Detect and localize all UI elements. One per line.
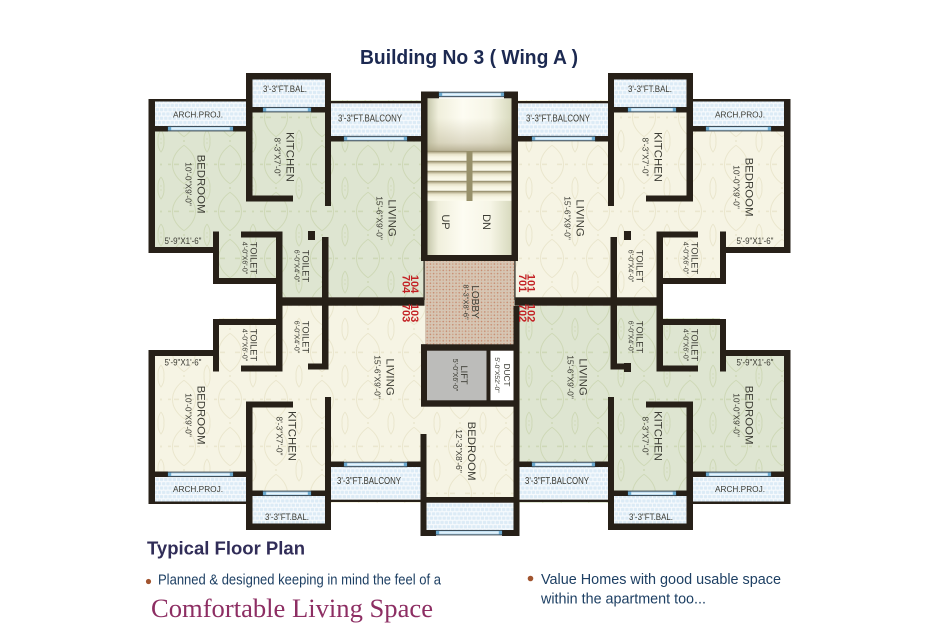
- svg-text:6'-0"X4'-0": 6'-0"X4'-0": [626, 250, 633, 283]
- svg-text:3'-3"FT.BALCONY: 3'-3"FT.BALCONY: [525, 476, 589, 487]
- svg-text:LIVING: LIVING: [576, 358, 588, 395]
- svg-text:BEDROOM: BEDROOM: [465, 422, 477, 481]
- svg-text:5'-9"X1'-6": 5'-9"X1'-6": [737, 236, 774, 246]
- svg-text:10'-0"X9'-0": 10'-0"X9'-0": [731, 165, 741, 209]
- svg-text:5'-9"X1'-6": 5'-9"X1'-6": [165, 357, 202, 367]
- svg-text:6'-0"X4'-0": 6'-0"X4'-0": [292, 250, 299, 283]
- svg-text:701: 701: [516, 274, 528, 292]
- svg-text:KITCHEN: KITCHEN: [283, 132, 295, 182]
- svg-text:ARCH.PROJ.: ARCH.PROJ.: [173, 485, 223, 494]
- svg-text:5'-9"X1'-6": 5'-9"X1'-6": [737, 357, 774, 367]
- svg-text:KITCHEN: KITCHEN: [651, 132, 663, 182]
- svg-text:TOILET: TOILET: [689, 242, 699, 275]
- svg-text:UP: UP: [439, 214, 451, 229]
- svg-text:LIFT: LIFT: [459, 365, 469, 384]
- svg-text:15'-6"X9'-0": 15'-6"X9'-0": [565, 355, 575, 399]
- svg-text:8'-3"X7'-0": 8'-3"X7'-0": [274, 417, 284, 456]
- svg-text:15'-6"X9'-0": 15'-6"X9'-0": [372, 355, 382, 399]
- svg-text:15'-6"X9'-0": 15'-6"X9'-0": [374, 196, 384, 240]
- svg-text:4'-0"X6'-0": 4'-0"X6'-0": [240, 329, 247, 362]
- svg-text:702: 702: [516, 304, 528, 322]
- svg-text:TOILET: TOILET: [248, 329, 258, 362]
- svg-text:3'-3"FT.BALCONY: 3'-3"FT.BALCONY: [526, 114, 590, 125]
- svg-text:4'-0"X6'-0": 4'-0"X6'-0": [681, 242, 688, 275]
- svg-text:3'-3"FT.BAL.: 3'-3"FT.BAL.: [629, 512, 673, 523]
- svg-text:TOILET: TOILET: [300, 321, 310, 354]
- svg-text:BEDROOM: BEDROOM: [742, 158, 754, 217]
- svg-text:BEDROOM: BEDROOM: [194, 155, 206, 214]
- svg-text:Building No 3 ( Wing A ): Building No 3 ( Wing A ): [360, 47, 578, 69]
- svg-text:8'-3"X7'-0": 8'-3"X7'-0": [640, 138, 650, 177]
- svg-text:3'-3"FT.BALCONY: 3'-3"FT.BALCONY: [337, 476, 401, 487]
- svg-text:3'-3"FT.BAL.: 3'-3"FT.BAL.: [265, 512, 309, 523]
- svg-text:BEDROOM: BEDROOM: [742, 386, 754, 445]
- svg-text:ARCH.PROJ.: ARCH.PROJ.: [173, 111, 223, 120]
- svg-text:5'-0"X52'-0": 5'-0"X52'-0": [493, 357, 500, 393]
- svg-text:8'-3"X7'-0": 8'-3"X7'-0": [272, 138, 282, 177]
- svg-text:5'-0"X6'-0": 5'-0"X6'-0": [451, 359, 458, 392]
- svg-text:5'-9"X1'-6": 5'-9"X1'-6": [165, 236, 202, 246]
- svg-text:10'-0"X9'-0": 10'-0"X9'-0": [731, 393, 741, 437]
- svg-text:3'-3"FT.BALCONY: 3'-3"FT.BALCONY: [338, 114, 402, 125]
- svg-text:DN: DN: [480, 214, 492, 230]
- svg-text:DUCT: DUCT: [502, 364, 511, 387]
- svg-text:KITCHEN: KITCHEN: [651, 411, 663, 461]
- svg-text:Planned & designed keeping in: Planned & designed keeping in mind the f…: [158, 572, 442, 589]
- svg-text:704: 704: [399, 275, 411, 294]
- svg-text:ARCH.PROJ.: ARCH.PROJ.: [715, 111, 765, 120]
- svg-text:8'-3"X8'-6": 8'-3"X8'-6": [462, 284, 471, 320]
- svg-text:Typical Floor Plan: Typical Floor Plan: [147, 538, 305, 559]
- svg-text:TOILET: TOILET: [300, 250, 310, 283]
- svg-text:10'-0"X9'-0": 10'-0"X9'-0": [183, 162, 193, 206]
- svg-text:within the apartment too...: within the apartment too...: [540, 591, 706, 608]
- svg-text:Value Homes with good usable s: Value Homes with good usable space: [541, 571, 781, 588]
- svg-text:10'-0"X9'-0": 10'-0"X9'-0": [183, 393, 193, 437]
- svg-text:3'-3"FT.BAL.: 3'-3"FT.BAL.: [628, 84, 672, 95]
- svg-text:TOILET: TOILET: [248, 242, 258, 275]
- svg-text:4'-0"X6'-0": 4'-0"X6'-0": [681, 329, 688, 362]
- svg-text:4'-0"X6'-0": 4'-0"X6'-0": [240, 242, 247, 275]
- svg-text:ARCH.PROJ.: ARCH.PROJ.: [715, 485, 765, 494]
- svg-text:TOILET: TOILET: [634, 321, 644, 354]
- svg-text:KITCHEN: KITCHEN: [285, 411, 297, 461]
- svg-text:3'-3"FT.BAL.: 3'-3"FT.BAL.: [263, 84, 307, 95]
- svg-text:703: 703: [399, 304, 411, 322]
- svg-text:LIVING: LIVING: [573, 199, 585, 236]
- svg-text:12'-3"X8'-6": 12'-3"X8'-6": [454, 429, 464, 473]
- svg-text:8'-3"X7'-0": 8'-3"X7'-0": [640, 417, 650, 456]
- svg-text:LIVING: LIVING: [385, 199, 397, 236]
- svg-text:6'-0"X4'-0": 6'-0"X4'-0": [626, 321, 633, 354]
- svg-text:TOILET: TOILET: [634, 250, 644, 283]
- svg-text:TOILET: TOILET: [689, 329, 699, 362]
- svg-text:BEDROOM: BEDROOM: [194, 386, 206, 445]
- svg-text:15'-6"X9'-0": 15'-6"X9'-0": [562, 196, 572, 240]
- svg-text:Comfortable Living Space: Comfortable Living Space: [151, 593, 433, 623]
- svg-text:6'-0"X4'-0": 6'-0"X4'-0": [292, 321, 299, 354]
- svg-text:LIVING: LIVING: [383, 358, 395, 395]
